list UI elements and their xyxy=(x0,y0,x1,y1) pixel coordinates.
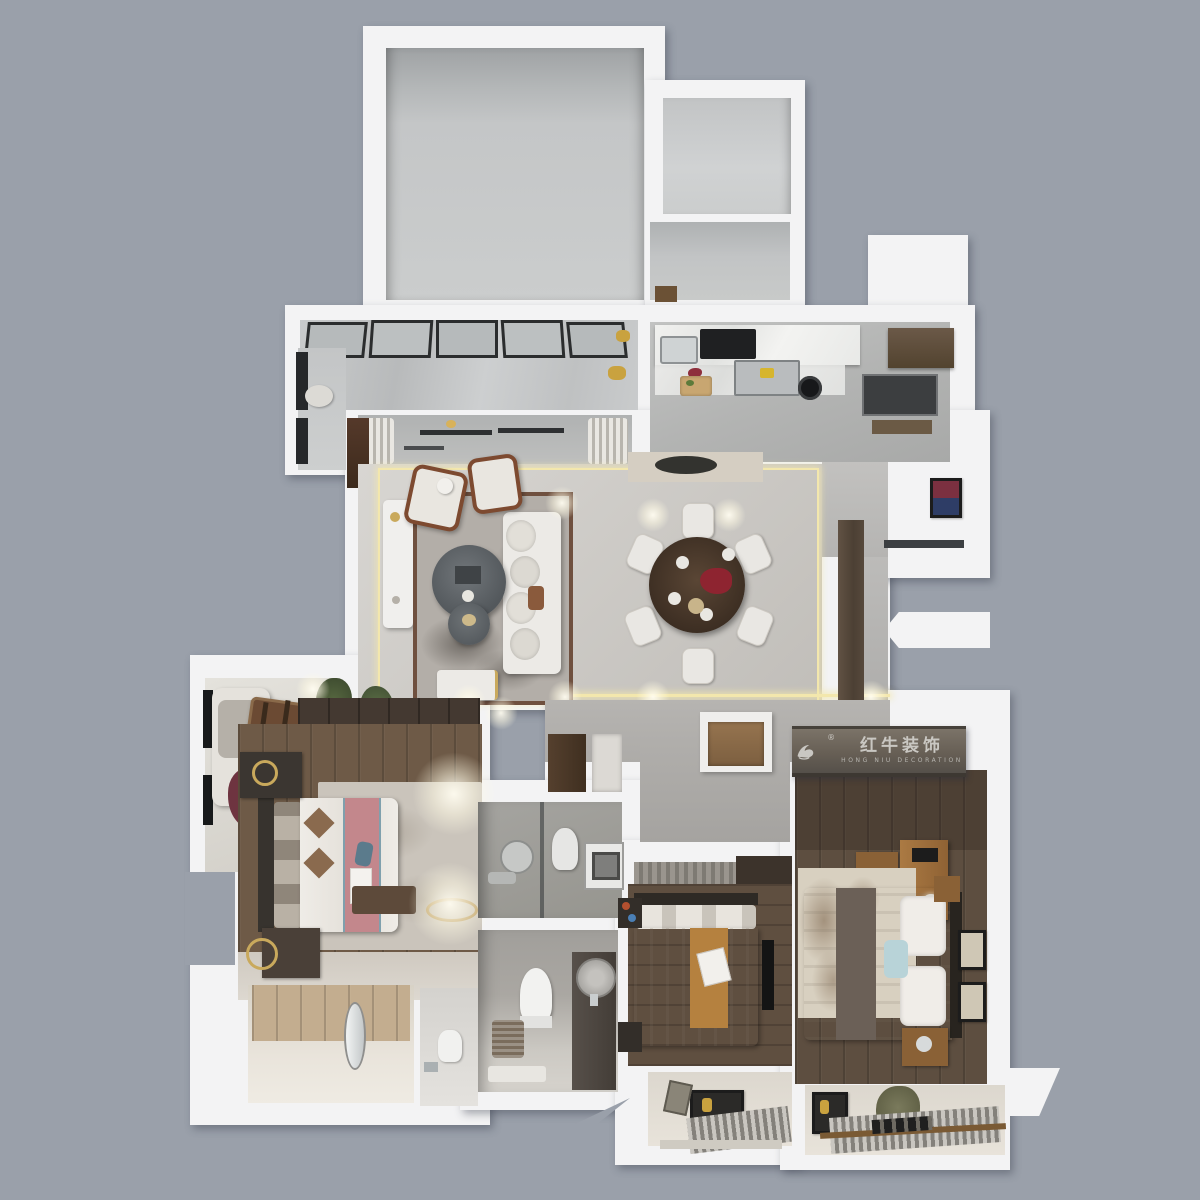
bedroom3-lamp-table xyxy=(934,876,960,902)
dining-centerpiece-flowers xyxy=(700,568,732,594)
side-table-decor xyxy=(462,614,476,626)
bedroom2-nightstand xyxy=(618,898,642,928)
master-wardrobe-band xyxy=(298,698,480,724)
nightstand-cup-red xyxy=(622,902,630,910)
bedroom2-tv xyxy=(762,940,774,1010)
bedroom3-floor-dark-top xyxy=(795,770,987,850)
gold-ring-lamp xyxy=(246,938,278,970)
dining-plate xyxy=(668,592,681,605)
dining-chair xyxy=(682,503,714,539)
bedroom3-runner-taupe xyxy=(836,888,876,1040)
master-bed-pillows xyxy=(274,802,302,928)
top-annex-floor xyxy=(663,98,791,214)
flower-table xyxy=(437,478,453,494)
bathroom-toilet-upper xyxy=(552,828,578,870)
bedroom3-wall-art xyxy=(958,982,986,1022)
vanity-faucet xyxy=(590,994,598,1006)
kitchen-greens xyxy=(686,380,694,386)
window-track xyxy=(404,446,444,450)
louver-base xyxy=(660,1140,782,1149)
nightstand-lamp-silver xyxy=(916,1036,932,1052)
bathroom-mirror-round xyxy=(500,840,534,874)
brand-logo-band: ® 红牛装饰 HONG NIU DECORATION xyxy=(792,726,966,777)
bedroom2-headboard xyxy=(634,893,758,905)
brand-name: 红牛装饰 HONG NIU DECORATION xyxy=(841,738,963,764)
desk-laptop xyxy=(912,848,938,862)
registered-mark: ® xyxy=(827,733,835,742)
balcony-table-set xyxy=(305,385,333,407)
entry-wall-art xyxy=(930,478,962,518)
window-track xyxy=(420,430,492,435)
corridor-cabinet-wood xyxy=(708,722,764,766)
gold-ring-lamp xyxy=(252,760,278,786)
kitchen-appliance-item xyxy=(760,368,774,378)
curtain-right xyxy=(588,418,628,464)
window-track xyxy=(498,428,564,433)
washing-machine-door xyxy=(592,852,620,880)
balcony-gold-decor xyxy=(608,366,626,380)
floor-plan-render: ® 红牛装饰 HONG NIU DECORATION xyxy=(0,0,1200,1200)
bath-mat xyxy=(488,1066,546,1082)
sofa-accent-pillow xyxy=(528,586,544,610)
wall-right-finger xyxy=(884,612,990,648)
bath-basket xyxy=(492,1020,524,1058)
kitchen-sink xyxy=(660,336,698,364)
wall-sconce-gold xyxy=(446,420,456,428)
cutout-left-notch xyxy=(185,872,235,965)
ceiling-light xyxy=(545,486,579,520)
bedroom2-wardrobe xyxy=(736,856,792,884)
top-room-floor xyxy=(386,48,644,300)
hall-door xyxy=(548,734,586,792)
bedroom2-nightstand-lower xyxy=(618,1022,642,1052)
hongniu-bull-logo-icon xyxy=(795,740,821,762)
master-floor-mat xyxy=(352,886,416,914)
dining-chair xyxy=(682,648,714,684)
kitchen-cutting-board xyxy=(680,376,712,396)
console-decor xyxy=(392,596,400,604)
vanity-basin xyxy=(576,958,616,998)
wall-corridor-sliver xyxy=(822,557,838,710)
bathroom-partition-glass xyxy=(540,802,544,918)
balcony-window-frame xyxy=(501,320,566,358)
balcony-window-frame xyxy=(436,320,498,358)
wall-light xyxy=(484,696,518,730)
entry-shadow-edge xyxy=(884,540,964,548)
sofa-cushion xyxy=(510,628,540,660)
standing-mirror xyxy=(344,1002,366,1070)
dining-gold-tray xyxy=(688,598,704,614)
bedroom2-pillows xyxy=(636,905,756,929)
sofa-cushion xyxy=(506,520,536,552)
accent-chair xyxy=(466,453,523,515)
coffee-table-tray xyxy=(455,566,481,584)
toilet-tank xyxy=(520,1016,552,1028)
bedroom3-cushion-blue xyxy=(884,940,908,978)
annex-stool xyxy=(655,286,677,302)
balcony-gold-decor xyxy=(616,330,630,342)
master-bed-headboard xyxy=(258,798,274,932)
bathroom-sink-items xyxy=(488,872,516,884)
bedroom2-curtain-band xyxy=(634,862,736,884)
shower-toilet xyxy=(438,1030,462,1062)
toilet xyxy=(520,968,552,1022)
kitchen-tall-cabinet xyxy=(888,328,954,368)
shower-fixture xyxy=(424,1062,438,1072)
balcony-window-frame xyxy=(369,320,434,358)
dining-sideboard-tray xyxy=(655,456,717,474)
dining-plate xyxy=(722,548,735,561)
brand-name-en: HONG NIU DECORATION xyxy=(841,758,963,764)
wall-bottom-right-nub xyxy=(1008,1068,1060,1116)
entry-door-cabinet xyxy=(838,520,864,710)
bedroom3-wall-art xyxy=(958,930,986,970)
coffee-table-plate xyxy=(462,590,474,602)
kitchen-appliance-steel xyxy=(734,360,800,396)
niche-gold-items xyxy=(702,1098,712,1112)
kitchen-oven-stack xyxy=(862,374,938,416)
kitchen-cooktop xyxy=(700,329,756,359)
kitchen-counter-wood xyxy=(872,420,932,434)
console-decor xyxy=(390,512,400,522)
niche-gold-items xyxy=(820,1100,829,1114)
dining-plate xyxy=(676,556,689,569)
ceiling-light xyxy=(712,498,746,532)
balcony-left-window-frame xyxy=(296,418,308,464)
hall-niche xyxy=(592,734,622,792)
dressing-wood-wall xyxy=(252,985,410,1041)
ceiling-light xyxy=(636,498,670,532)
nightstand-cup-blue xyxy=(628,914,636,922)
brand-name-cn: 红牛装饰 xyxy=(860,738,944,755)
sofa-cushion xyxy=(510,556,540,588)
kitchen-kettle xyxy=(798,376,822,400)
